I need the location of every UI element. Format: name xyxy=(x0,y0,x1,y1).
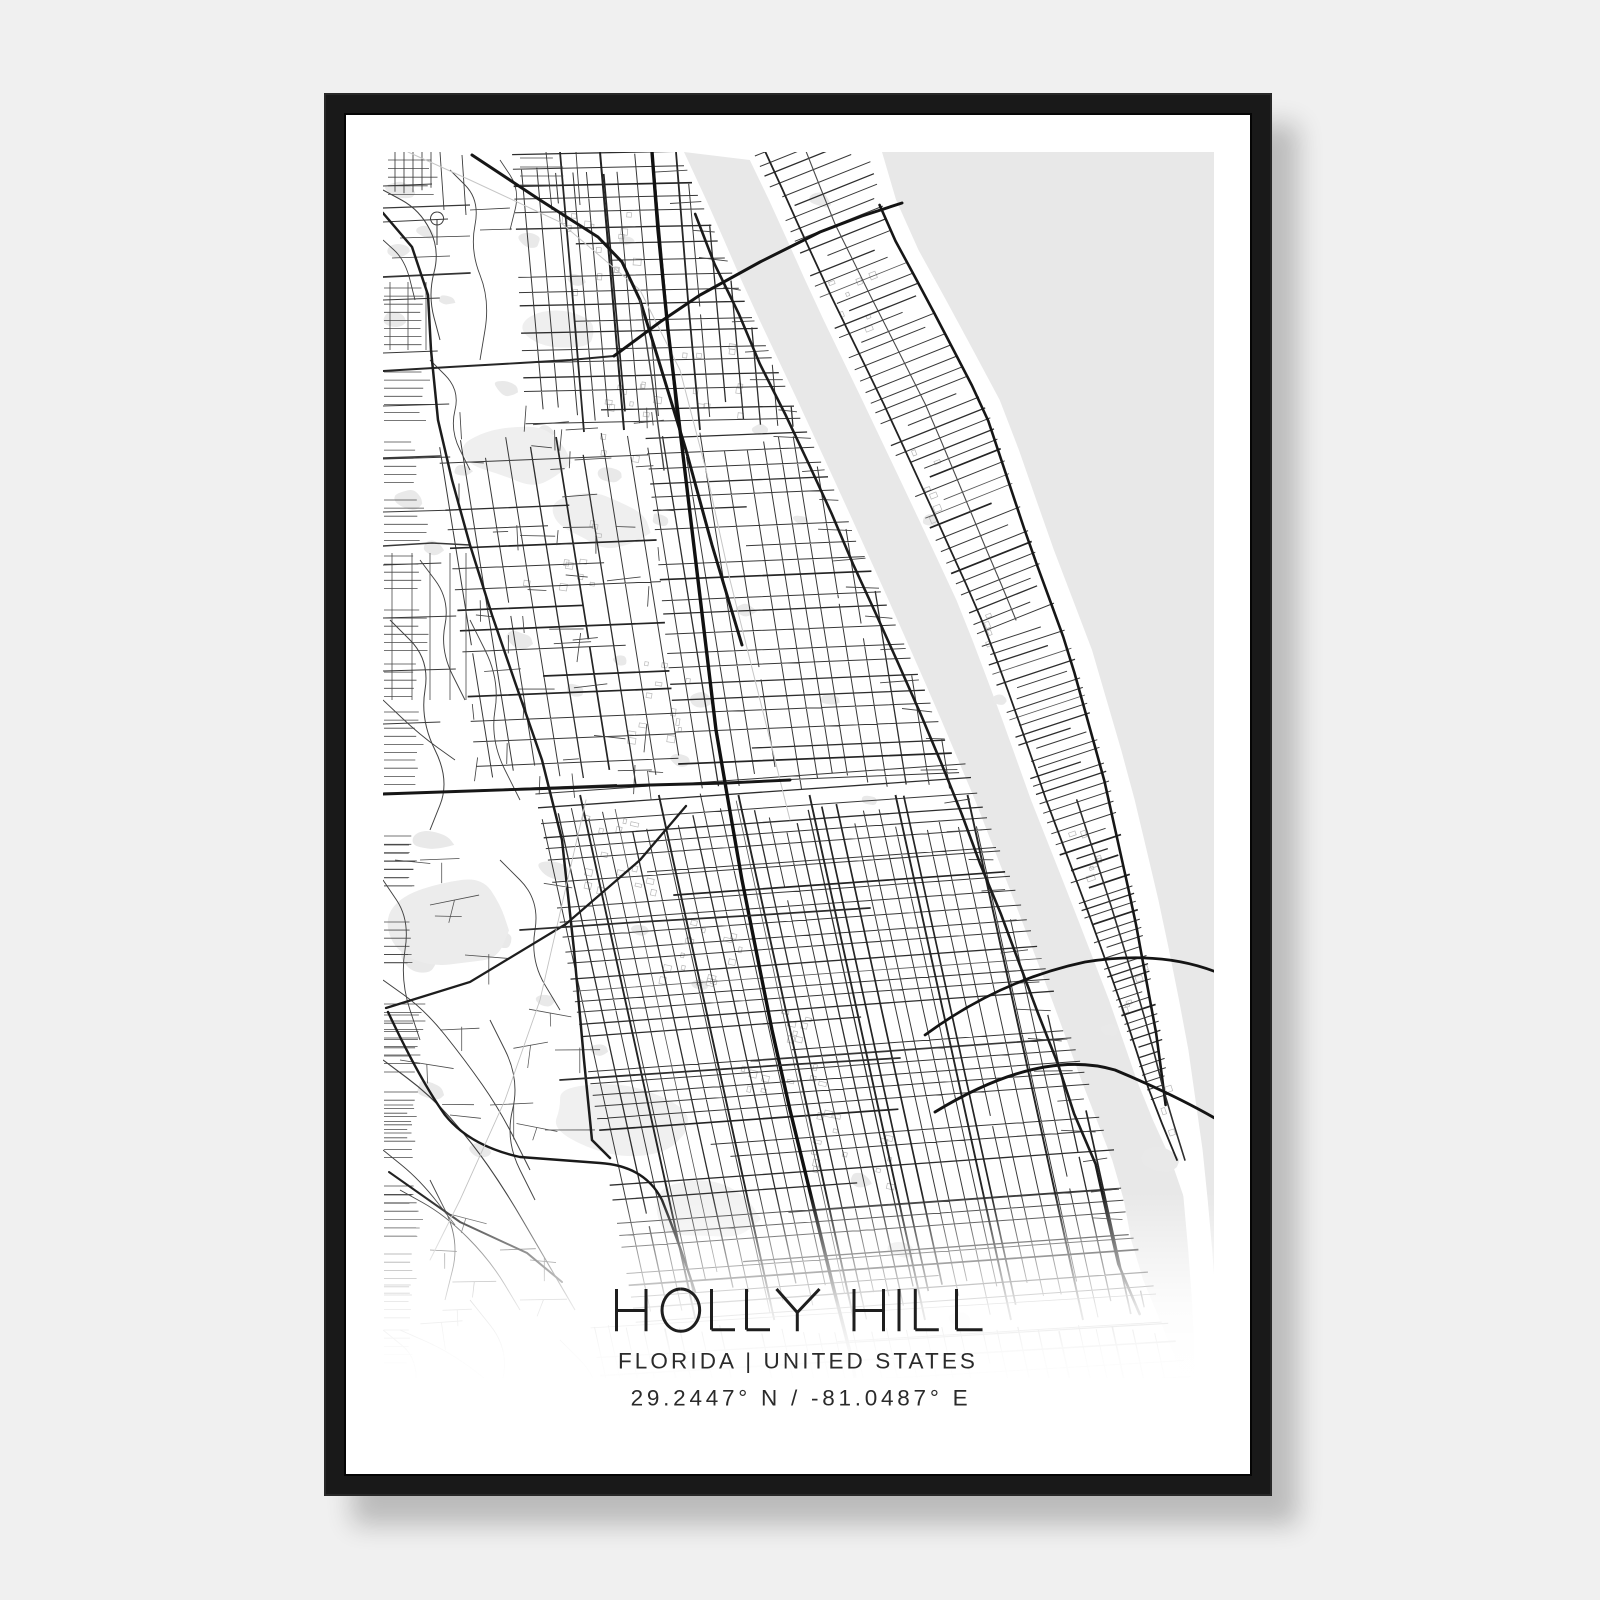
svg-text:29.2447° N / -81.0487° E: 29.2447° N / -81.0487° E xyxy=(631,1386,972,1411)
svg-text:FLORIDA | UNITED STATES: FLORIDA | UNITED STATES xyxy=(618,1349,978,1374)
